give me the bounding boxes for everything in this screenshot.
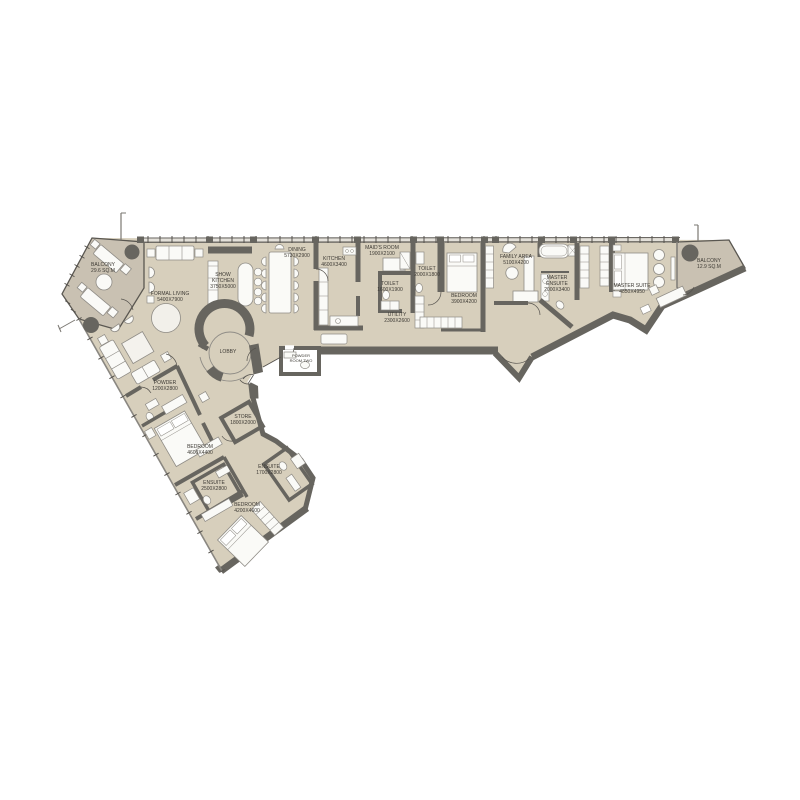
svg-text:1900X2100: 1900X2100 [369,251,395,257]
svg-text:4200X4600: 4200X4600 [234,508,260,514]
svg-text:2500X2800: 2500X2800 [201,486,227,492]
svg-text:4850X4950: 4850X4950 [619,289,645,295]
svg-text:5100X4200: 5100X4200 [503,260,529,266]
svg-text:1800X2000: 1800X2000 [230,420,256,426]
svg-text:5400X7900: 5400X7900 [157,297,183,303]
svg-text:ROOM TWO: ROOM TWO [290,358,313,363]
svg-text:3900X4200: 3900X4200 [451,299,477,305]
svg-text:2000X1800: 2000X1800 [414,272,440,278]
svg-text:12.9 SQ.M: 12.9 SQ.M [697,264,721,270]
svg-text:4600X4400: 4600X4400 [187,450,213,456]
svg-text:1700X2800: 1700X2800 [256,470,282,476]
svg-text:4600X3400: 4600X3400 [321,262,347,268]
svg-text:5730X2900: 5730X2900 [284,253,310,259]
svg-text:LOBBY: LOBBY [220,349,237,355]
svg-text:3750X5000: 3750X5000 [210,284,236,290]
svg-text:2000X3400: 2000X3400 [544,287,570,293]
svg-text:1200X2800: 1200X2800 [152,386,178,392]
svg-text:2300X2600: 2300X2600 [384,318,410,324]
svg-text:29.6 SQ.M: 29.6 SQ.M [91,268,115,274]
svg-text:1600X1900: 1600X1900 [377,287,403,293]
